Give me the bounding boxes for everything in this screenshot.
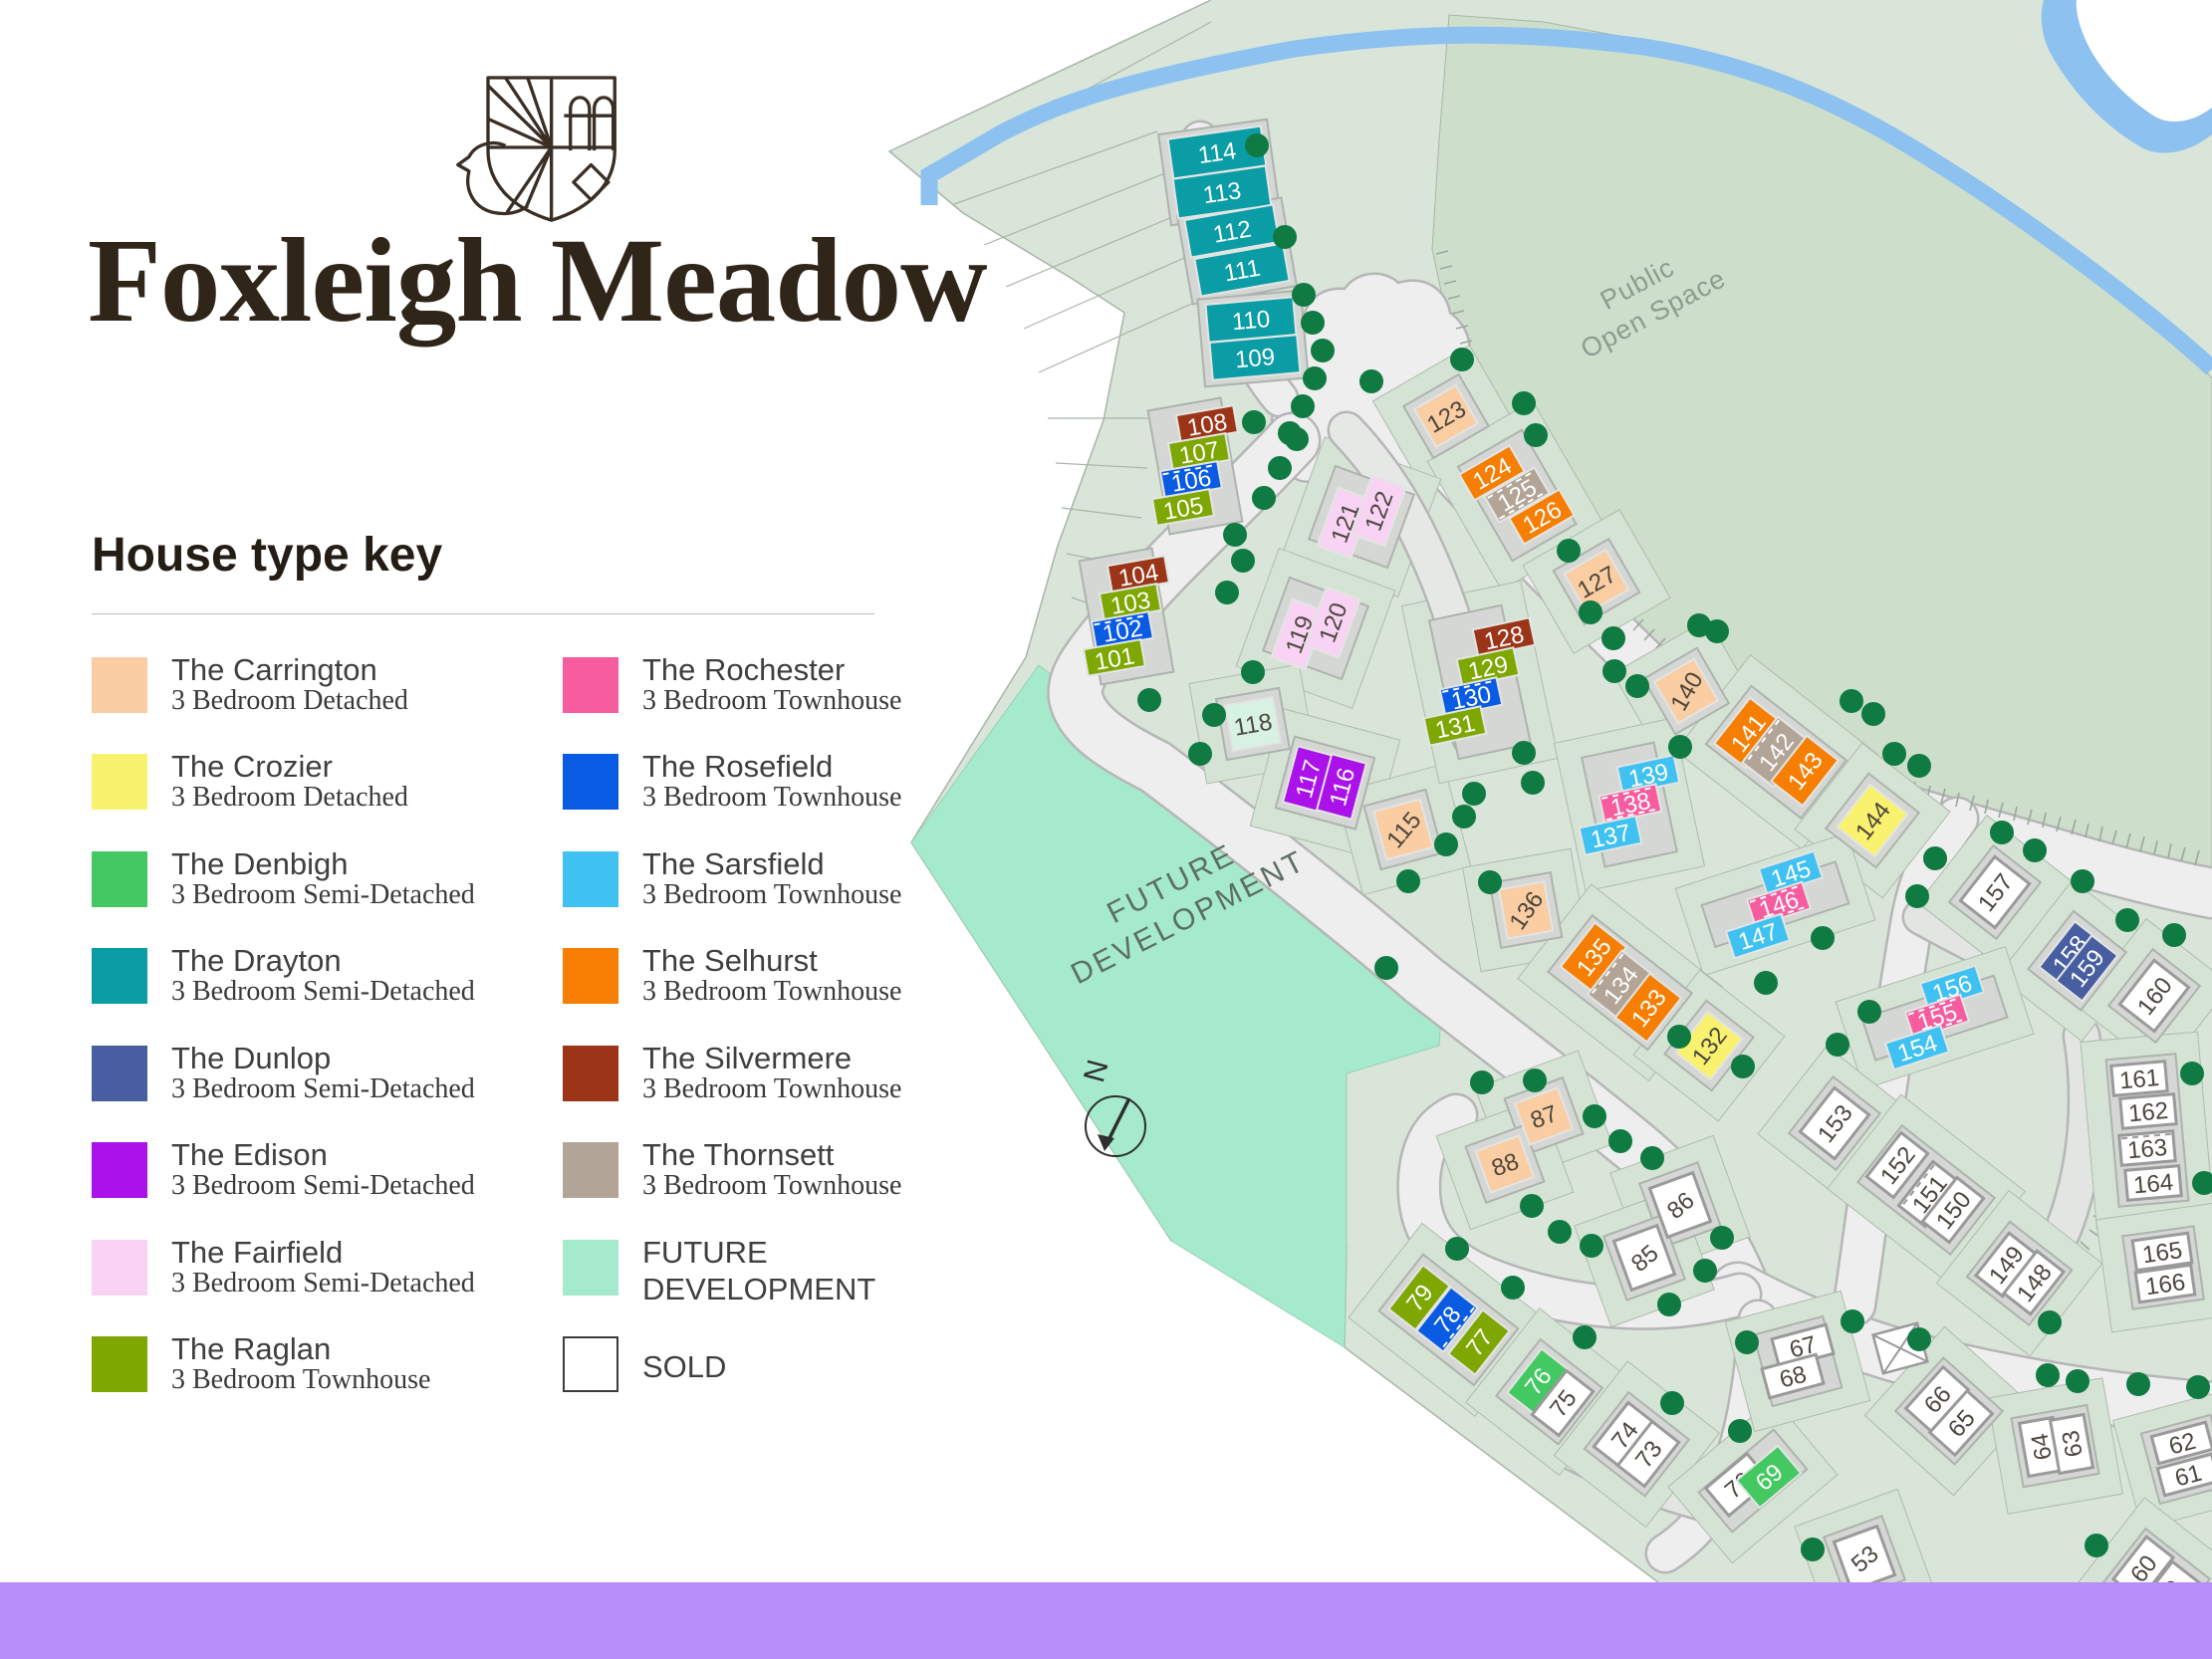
- svg-text:165: 165: [2140, 1237, 2183, 1269]
- svg-text:114: 114: [1196, 137, 1238, 169]
- svg-text:166: 166: [2143, 1269, 2186, 1301]
- svg-text:161: 161: [2118, 1065, 2160, 1094]
- svg-text:164: 164: [2132, 1169, 2174, 1199]
- svg-text:162: 162: [2127, 1097, 2169, 1127]
- svg-text:109: 109: [1234, 344, 1276, 373]
- svg-text:113: 113: [1201, 177, 1243, 209]
- svg-text:163: 163: [2126, 1134, 2168, 1164]
- svg-text:110: 110: [1231, 306, 1271, 336]
- svg-text:63: 63: [2058, 1428, 2089, 1459]
